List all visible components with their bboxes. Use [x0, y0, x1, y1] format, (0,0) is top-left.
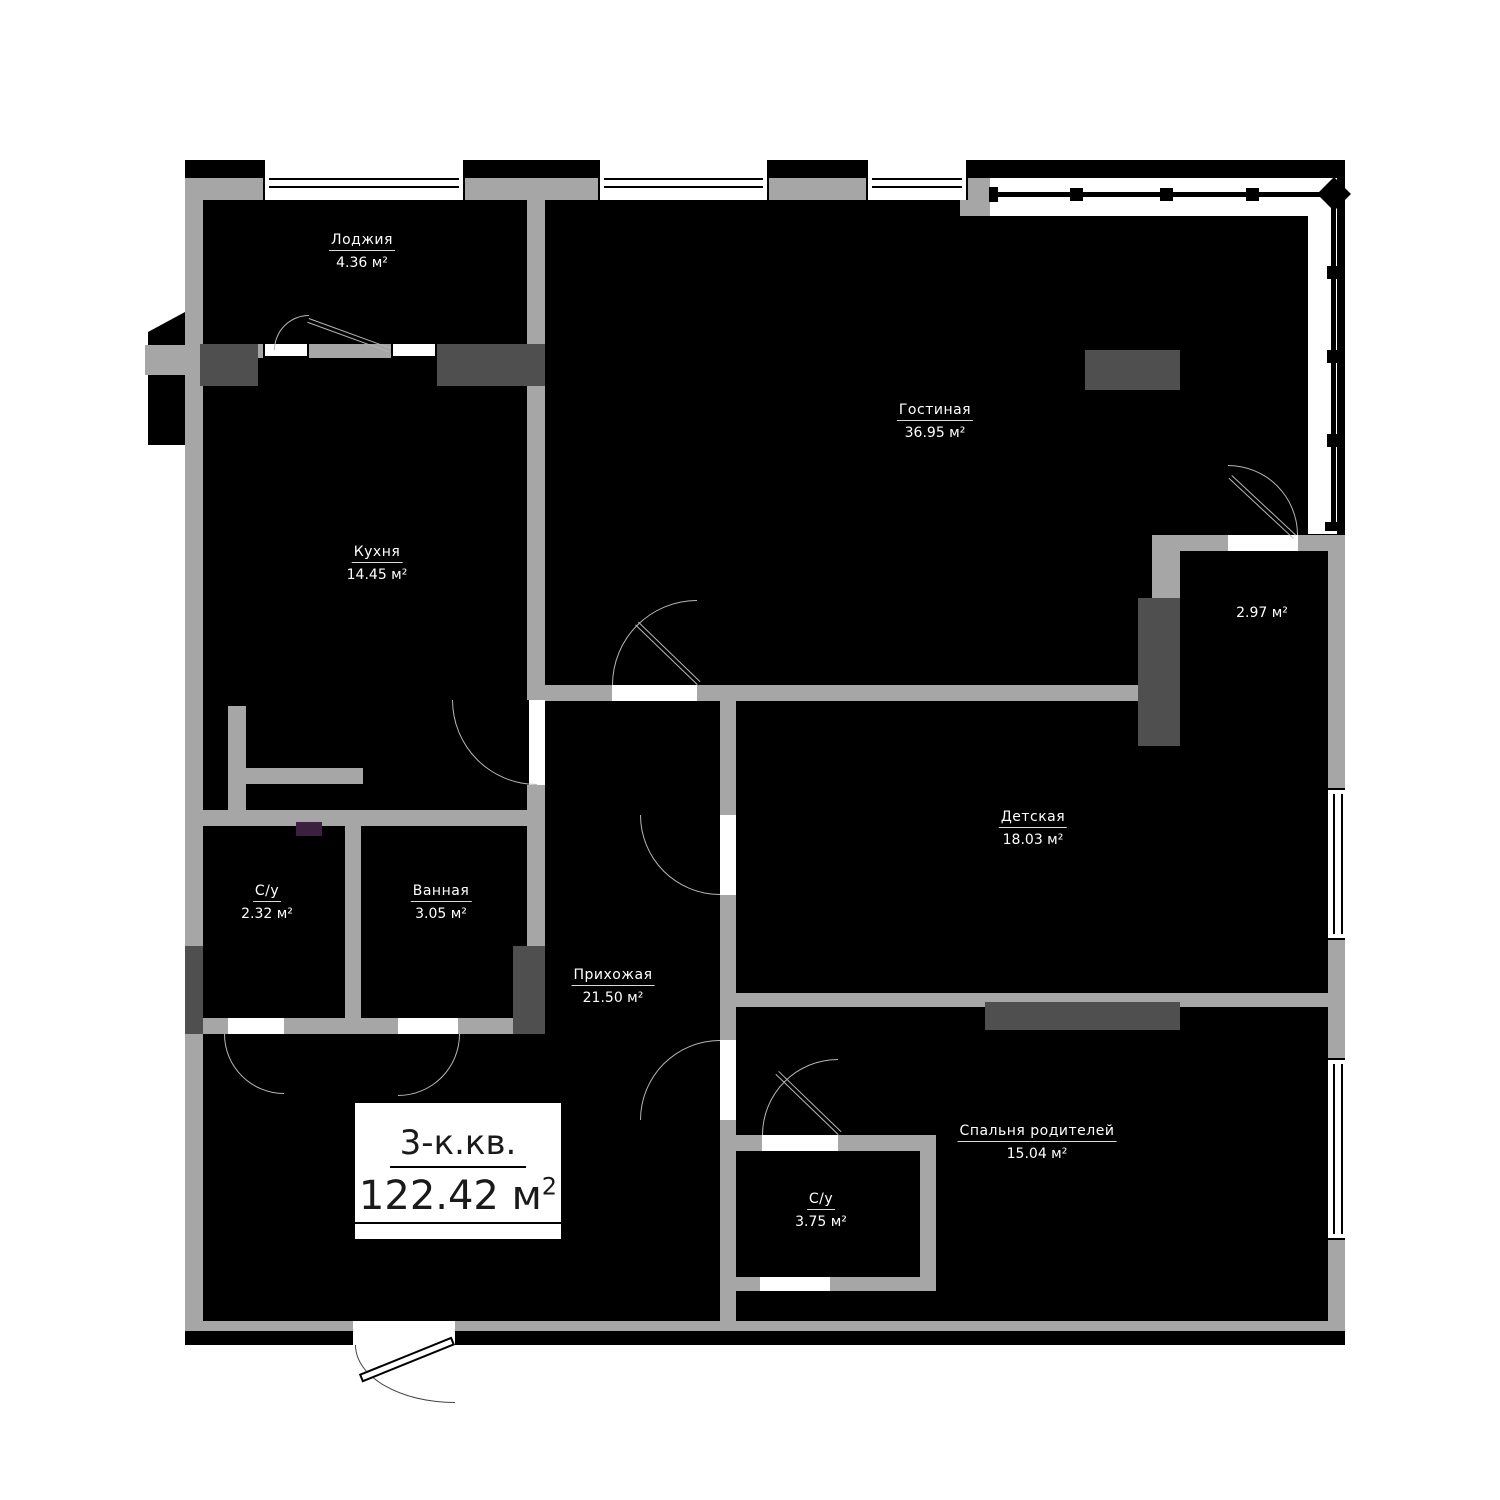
room-name: Гостиная	[897, 403, 973, 421]
title-box: 3-к.кв. 122.42 м2	[352, 1100, 564, 1242]
room-name: Прихожая	[572, 968, 655, 986]
room-area: 2.32 м²	[241, 907, 293, 922]
door-opening-wardrobe	[1228, 535, 1298, 551]
wall-right-outer	[1328, 551, 1345, 691]
furniture-block	[1085, 350, 1180, 390]
railing-post	[1325, 522, 1340, 531]
room-name: Лоджия	[329, 233, 395, 251]
window-pane	[1333, 794, 1342, 934]
window-pane	[604, 178, 763, 188]
window-pane	[872, 178, 962, 188]
apartment-type-label: 3-к.кв.	[390, 1123, 527, 1163]
wall-right-outer	[1328, 936, 1345, 1058]
duct-block	[437, 344, 545, 386]
furniture-block	[985, 1002, 1180, 1030]
balcony-door-panel	[391, 342, 437, 358]
room-name: С/у	[253, 884, 281, 902]
wall-bath-divider	[345, 810, 361, 1032]
fixture-block	[296, 822, 322, 836]
door-opening-bathroom	[398, 1018, 458, 1034]
window	[1328, 1058, 1345, 1240]
room-name: Кухня	[352, 545, 403, 563]
room-name: Ванная	[411, 884, 472, 902]
duct-block	[185, 946, 203, 1034]
total-area-unit: м	[512, 1173, 542, 1219]
wall-wc2-right	[920, 1135, 936, 1291]
room-area: 18.03 м²	[1003, 833, 1064, 848]
wall-right-outer	[1328, 1236, 1345, 1325]
duct-block	[513, 946, 545, 1034]
door-opening-hall	[720, 1040, 736, 1120]
structural-wedge	[148, 312, 185, 445]
room-label-hall: Прихожая 21.50 м²	[572, 968, 655, 1007]
window	[263, 160, 465, 200]
door-opening-wc2-bottom	[760, 1277, 830, 1291]
room-area: 14.45 м²	[347, 568, 408, 583]
door-opening-living	[612, 685, 697, 701]
door-opening-wc2	[762, 1135, 838, 1151]
room-name: Спальня родителей	[958, 1124, 1117, 1142]
room-label-loggia: Лоджия 4.36 м²	[329, 233, 395, 272]
room-name: С/у	[807, 1192, 835, 1210]
railing-post	[1246, 188, 1259, 201]
room-label-wc1: С/у 2.32 м²	[241, 884, 293, 923]
floor-plan-canvas: Лоджия 4.36 м² Кухня 14.45 м² Гостиная 3…	[0, 0, 1500, 1500]
wall-segment	[228, 706, 246, 810]
duct-block	[200, 344, 258, 386]
wall-segment	[246, 768, 363, 784]
total-area-sup: 2	[542, 1173, 557, 1201]
wall-hall-right	[720, 685, 736, 1325]
railing-post	[1327, 350, 1340, 363]
room-area: 2.97 м²	[1236, 606, 1288, 621]
railing-post	[1070, 188, 1083, 201]
wall-segment	[145, 345, 185, 375]
room-area: 15.04 м²	[1007, 1147, 1068, 1162]
room-label-kitchen: Кухня 14.45 м²	[347, 545, 408, 584]
room-name: Детская	[999, 810, 1067, 828]
window-pane	[1333, 1064, 1342, 1234]
door-opening-nursery	[720, 815, 736, 895]
window	[1328, 788, 1345, 940]
room-label-bathroom: Ванная 3.05 м²	[411, 884, 472, 923]
room-label-wc2: С/у 3.75 м²	[795, 1192, 847, 1231]
railing-post	[1327, 434, 1340, 447]
room-area: 3.75 м²	[795, 1215, 847, 1230]
room-area: 4.36 м²	[336, 256, 388, 271]
duct-block	[1138, 598, 1180, 746]
wall-loggia-right	[527, 178, 545, 358]
room-area: 21.50 м²	[583, 991, 644, 1006]
room-label-bedroom: Спальня родителей 15.04 м²	[958, 1124, 1117, 1163]
railing-post	[1160, 188, 1173, 201]
room-label-nursery: Детская 18.03 м²	[999, 810, 1067, 849]
window	[866, 160, 968, 200]
apartment-type-text: 3-к.кв.	[390, 1123, 527, 1168]
door-opening-wc1	[228, 1018, 284, 1034]
wall-kitchen-hall	[527, 358, 545, 700]
wall-bath-top	[203, 810, 545, 826]
room-label-living: Гостиная 36.95 м²	[897, 403, 973, 442]
railing-post	[1327, 266, 1340, 279]
room-area: 3.05 м²	[415, 907, 467, 922]
window	[598, 160, 769, 200]
apartment-area-label: 122.42 м2	[349, 1173, 567, 1219]
wall-right-outer	[1328, 691, 1345, 788]
room-area: 36.95 м²	[905, 426, 966, 441]
window-pane	[269, 178, 459, 188]
railing-post	[989, 187, 998, 202]
total-area-value: 122.42	[359, 1173, 499, 1219]
room-label-wardrobe: 2.97 м²	[1236, 606, 1288, 621]
